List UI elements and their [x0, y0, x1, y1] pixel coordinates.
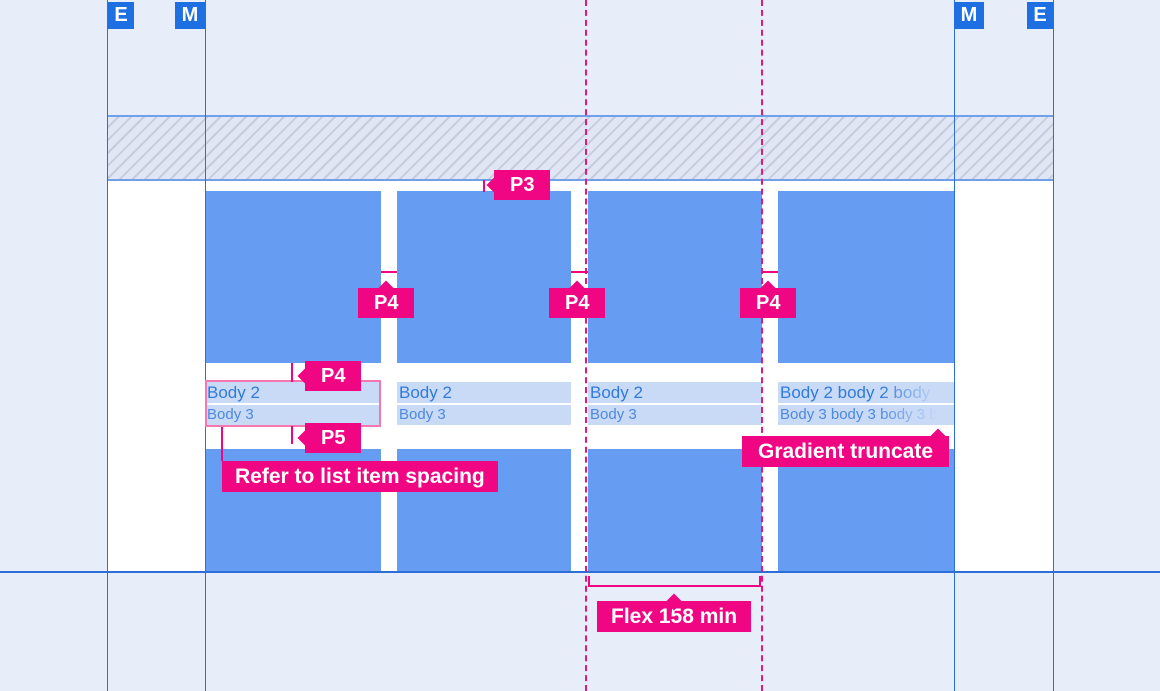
- margin-marker-m-right: M: [954, 2, 984, 29]
- card-body2-text: Body 2: [588, 382, 762, 403]
- card-image-placeholder: [588, 449, 762, 572]
- measurement-tick-p5: [291, 426, 293, 444]
- card-body3-text: Body 3: [397, 405, 571, 425]
- margin-marker-e-left: E: [108, 2, 134, 29]
- card-image-placeholder: [778, 191, 954, 363]
- annotation-flex-158-min: Flex 158 min: [597, 601, 751, 632]
- margin-guide-left-outer: [107, 0, 108, 691]
- card-image-placeholder: [205, 191, 381, 363]
- margin-marker-e-right: E: [1027, 2, 1053, 29]
- annotation-p4-text: P4: [305, 361, 361, 391]
- hatched-reserved-band: [107, 115, 1053, 181]
- card-image-placeholder: [588, 191, 762, 363]
- annotation-p4-gap1: P4: [358, 288, 414, 318]
- flex-width-bracket: [588, 576, 761, 587]
- measurement-tick-p3: [483, 180, 485, 192]
- flex-column-guide-left: [585, 0, 587, 691]
- design-spec-canvas: E M M E Body 2 Body 3 Body 2 Body 3 Body…: [0, 0, 1160, 691]
- margin-guide-right-outer: [1053, 0, 1054, 691]
- card: Body 2 Body 3: [588, 191, 762, 572]
- card-image-placeholder: [778, 449, 954, 572]
- annotation-p5: P5: [305, 423, 361, 453]
- flex-column-guide-right: [761, 0, 763, 691]
- margin-guide-right-inner: [954, 0, 955, 691]
- card-body3-text-truncated: Body 3 body 3 body 3 b: [778, 405, 954, 425]
- card-image-placeholder: [397, 191, 571, 363]
- card: Body 2 body 2 body Body 3 body 3 body 3 …: [778, 191, 954, 572]
- refer-callout-connector: [221, 427, 223, 461]
- annotation-p4-gap2: P4: [549, 288, 605, 318]
- margin-guide-left-inner: [205, 0, 206, 691]
- card: Body 2 Body 3: [397, 191, 571, 572]
- baseline-guide: [0, 571, 1160, 573]
- measurement-tick-gap2: [571, 271, 588, 273]
- measurement-tick-gap1: [381, 271, 397, 273]
- card-body2-text-truncated: Body 2 body 2 body: [778, 382, 954, 403]
- card-body2-text: Body 2: [397, 382, 571, 403]
- card-body3-text: Body 3: [588, 405, 762, 425]
- annotation-p3: P3: [494, 170, 550, 200]
- margin-marker-m-left: M: [175, 2, 205, 29]
- measurement-tick-gap3: [762, 271, 778, 273]
- measurement-tick-p4-text: [291, 363, 293, 382]
- annotation-refer-list-item-spacing: Refer to list item spacing: [222, 461, 498, 492]
- annotation-p4-gap3: P4: [740, 288, 796, 318]
- annotation-gradient-truncate: Gradient truncate: [742, 436, 949, 467]
